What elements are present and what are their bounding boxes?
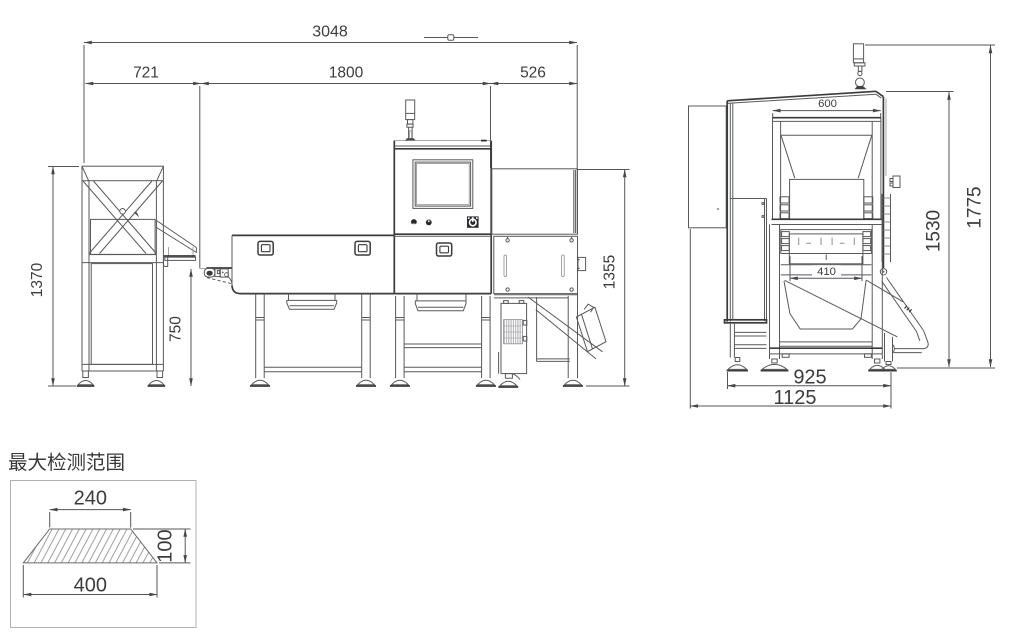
svg-text:100: 100: [155, 529, 177, 562]
svg-text:1370: 1370: [29, 262, 46, 297]
svg-text:400: 400: [74, 575, 107, 597]
svg-text:721: 721: [133, 65, 159, 82]
svg-text:1530: 1530: [924, 210, 945, 252]
svg-text:最大检测范围: 最大检测范围: [8, 452, 125, 474]
svg-text:1800: 1800: [329, 65, 364, 82]
svg-text:240: 240: [74, 487, 107, 509]
svg-text:925: 925: [793, 367, 826, 389]
svg-text:1775: 1775: [965, 186, 986, 228]
svg-text:750: 750: [168, 316, 185, 342]
svg-text:410: 410: [817, 266, 836, 278]
svg-text:3048: 3048: [312, 24, 348, 41]
svg-text:526: 526: [520, 65, 546, 82]
svg-text:1355: 1355: [602, 255, 619, 289]
svg-text:600: 600: [818, 98, 837, 110]
svg-text:1125: 1125: [773, 387, 816, 409]
